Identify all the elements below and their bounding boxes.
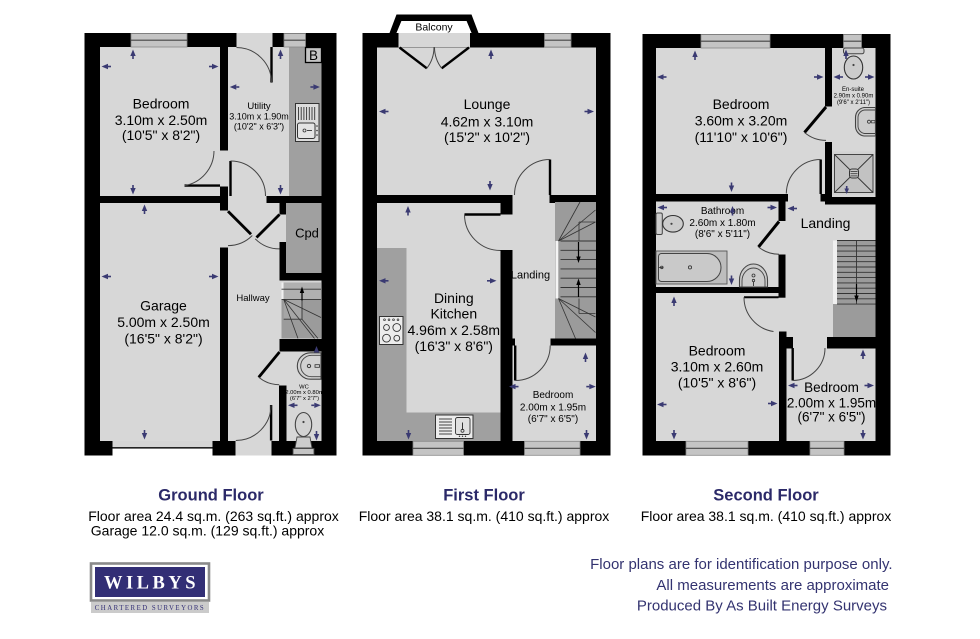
svg-text:Ground Floor: Ground Floor xyxy=(158,487,264,505)
svg-text:4.62m x 3.10m: 4.62m x 3.10m xyxy=(441,113,534,129)
svg-text:WILBYS: WILBYS xyxy=(104,574,199,594)
svg-text:3.10m x 2.60m: 3.10m x 2.60m xyxy=(671,359,764,375)
svg-text:First Floor: First Floor xyxy=(443,487,525,505)
svg-text:(16'3" x 8'6"): (16'3" x 8'6") xyxy=(415,338,493,354)
svg-text:En-suite: En-suite xyxy=(842,87,865,93)
svg-text:(10'5" x 8'2"): (10'5" x 8'2") xyxy=(122,127,200,143)
svg-text:Second Floor: Second Floor xyxy=(713,487,819,505)
svg-text:(6'7" x 6'5"): (6'7" x 6'5") xyxy=(528,414,578,425)
svg-text:3.60m x 3.20m: 3.60m x 3.20m xyxy=(695,112,788,128)
svg-text:Bedroom: Bedroom xyxy=(133,96,190,112)
svg-text:2.90m x 0.90m: 2.90m x 0.90m xyxy=(834,94,874,100)
svg-text:Dining: Dining xyxy=(434,290,474,306)
svg-text:Utility: Utility xyxy=(247,101,270,112)
svg-text:Bedroom: Bedroom xyxy=(713,96,770,112)
svg-text:(6'7" x 6'5"): (6'7" x 6'5") xyxy=(797,409,865,424)
svg-text:2.60m x 1.80m: 2.60m x 1.80m xyxy=(689,218,755,229)
svg-text:Bedroom: Bedroom xyxy=(689,343,746,359)
svg-text:(10'2" x 6'3"): (10'2" x 6'3") xyxy=(234,121,284,131)
svg-text:Lounge: Lounge xyxy=(464,96,511,112)
svg-text:2.00m x 1.95m: 2.00m x 1.95m xyxy=(787,396,876,411)
svg-text:Kitchen: Kitchen xyxy=(430,306,477,322)
svg-text:3.10m x 2.50m: 3.10m x 2.50m xyxy=(115,112,208,128)
svg-text:Bedroom: Bedroom xyxy=(533,390,574,401)
svg-text:Floor area 38.1 sq.m. (410 sq.: Floor area 38.1 sq.m. (410 sq.ft.) appro… xyxy=(641,508,892,524)
svg-text:(9'6" x 2'11"): (9'6" x 2'11") xyxy=(837,100,870,106)
svg-text:Floor area 38.1 sq.m. (410 sq.: Floor area 38.1 sq.m. (410 sq.ft.) appro… xyxy=(359,508,610,524)
svg-text:Produced By As Built Energy Su: Produced By As Built Energy Surveys xyxy=(637,598,887,615)
svg-text:Bathroom: Bathroom xyxy=(701,206,744,217)
svg-text:Garage: Garage xyxy=(140,298,187,314)
svg-text:CHARTERED SURVEYORS: CHARTERED SURVEYORS xyxy=(95,605,205,612)
svg-text:Balcony: Balcony xyxy=(415,22,453,34)
svg-text:(15'2" x 10'2"): (15'2" x 10'2") xyxy=(444,129,530,145)
svg-text:Landing: Landing xyxy=(511,269,550,281)
svg-text:(6'7" x 2'7"): (6'7" x 2'7") xyxy=(290,396,319,402)
svg-text:Floor plans are for identifica: Floor plans are for identification purpo… xyxy=(590,556,892,573)
svg-text:All measurements are approxima: All measurements are approximate xyxy=(656,577,889,594)
svg-text:Garage 12.0 sq.m. (129 sq.ft.): Garage 12.0 sq.m. (129 sq.ft.) approx xyxy=(91,523,324,539)
svg-text:(11'10" x 10'6"): (11'10" x 10'6") xyxy=(695,129,788,145)
svg-text:(8'6" x 5'11"): (8'6" x 5'11") xyxy=(695,229,750,240)
svg-text:4.96m x 2.58m: 4.96m x 2.58m xyxy=(407,322,500,338)
svg-text:5.00m x 2.50m: 5.00m x 2.50m xyxy=(117,314,210,330)
svg-text:Cpd: Cpd xyxy=(295,226,319,241)
svg-text:Landing: Landing xyxy=(801,215,851,231)
svg-text:(10'5" x 8'6"): (10'5" x 8'6") xyxy=(678,374,756,390)
svg-text:B: B xyxy=(309,48,318,63)
svg-text:(16'5" x 8'2"): (16'5" x 8'2") xyxy=(124,331,202,347)
svg-text:Hallway: Hallway xyxy=(236,293,270,304)
svg-text:2.00m x 1.95m: 2.00m x 1.95m xyxy=(520,402,586,413)
svg-text:3.10m x 1.90m: 3.10m x 1.90m xyxy=(229,111,289,121)
svg-text:Bedroom: Bedroom xyxy=(804,380,859,395)
